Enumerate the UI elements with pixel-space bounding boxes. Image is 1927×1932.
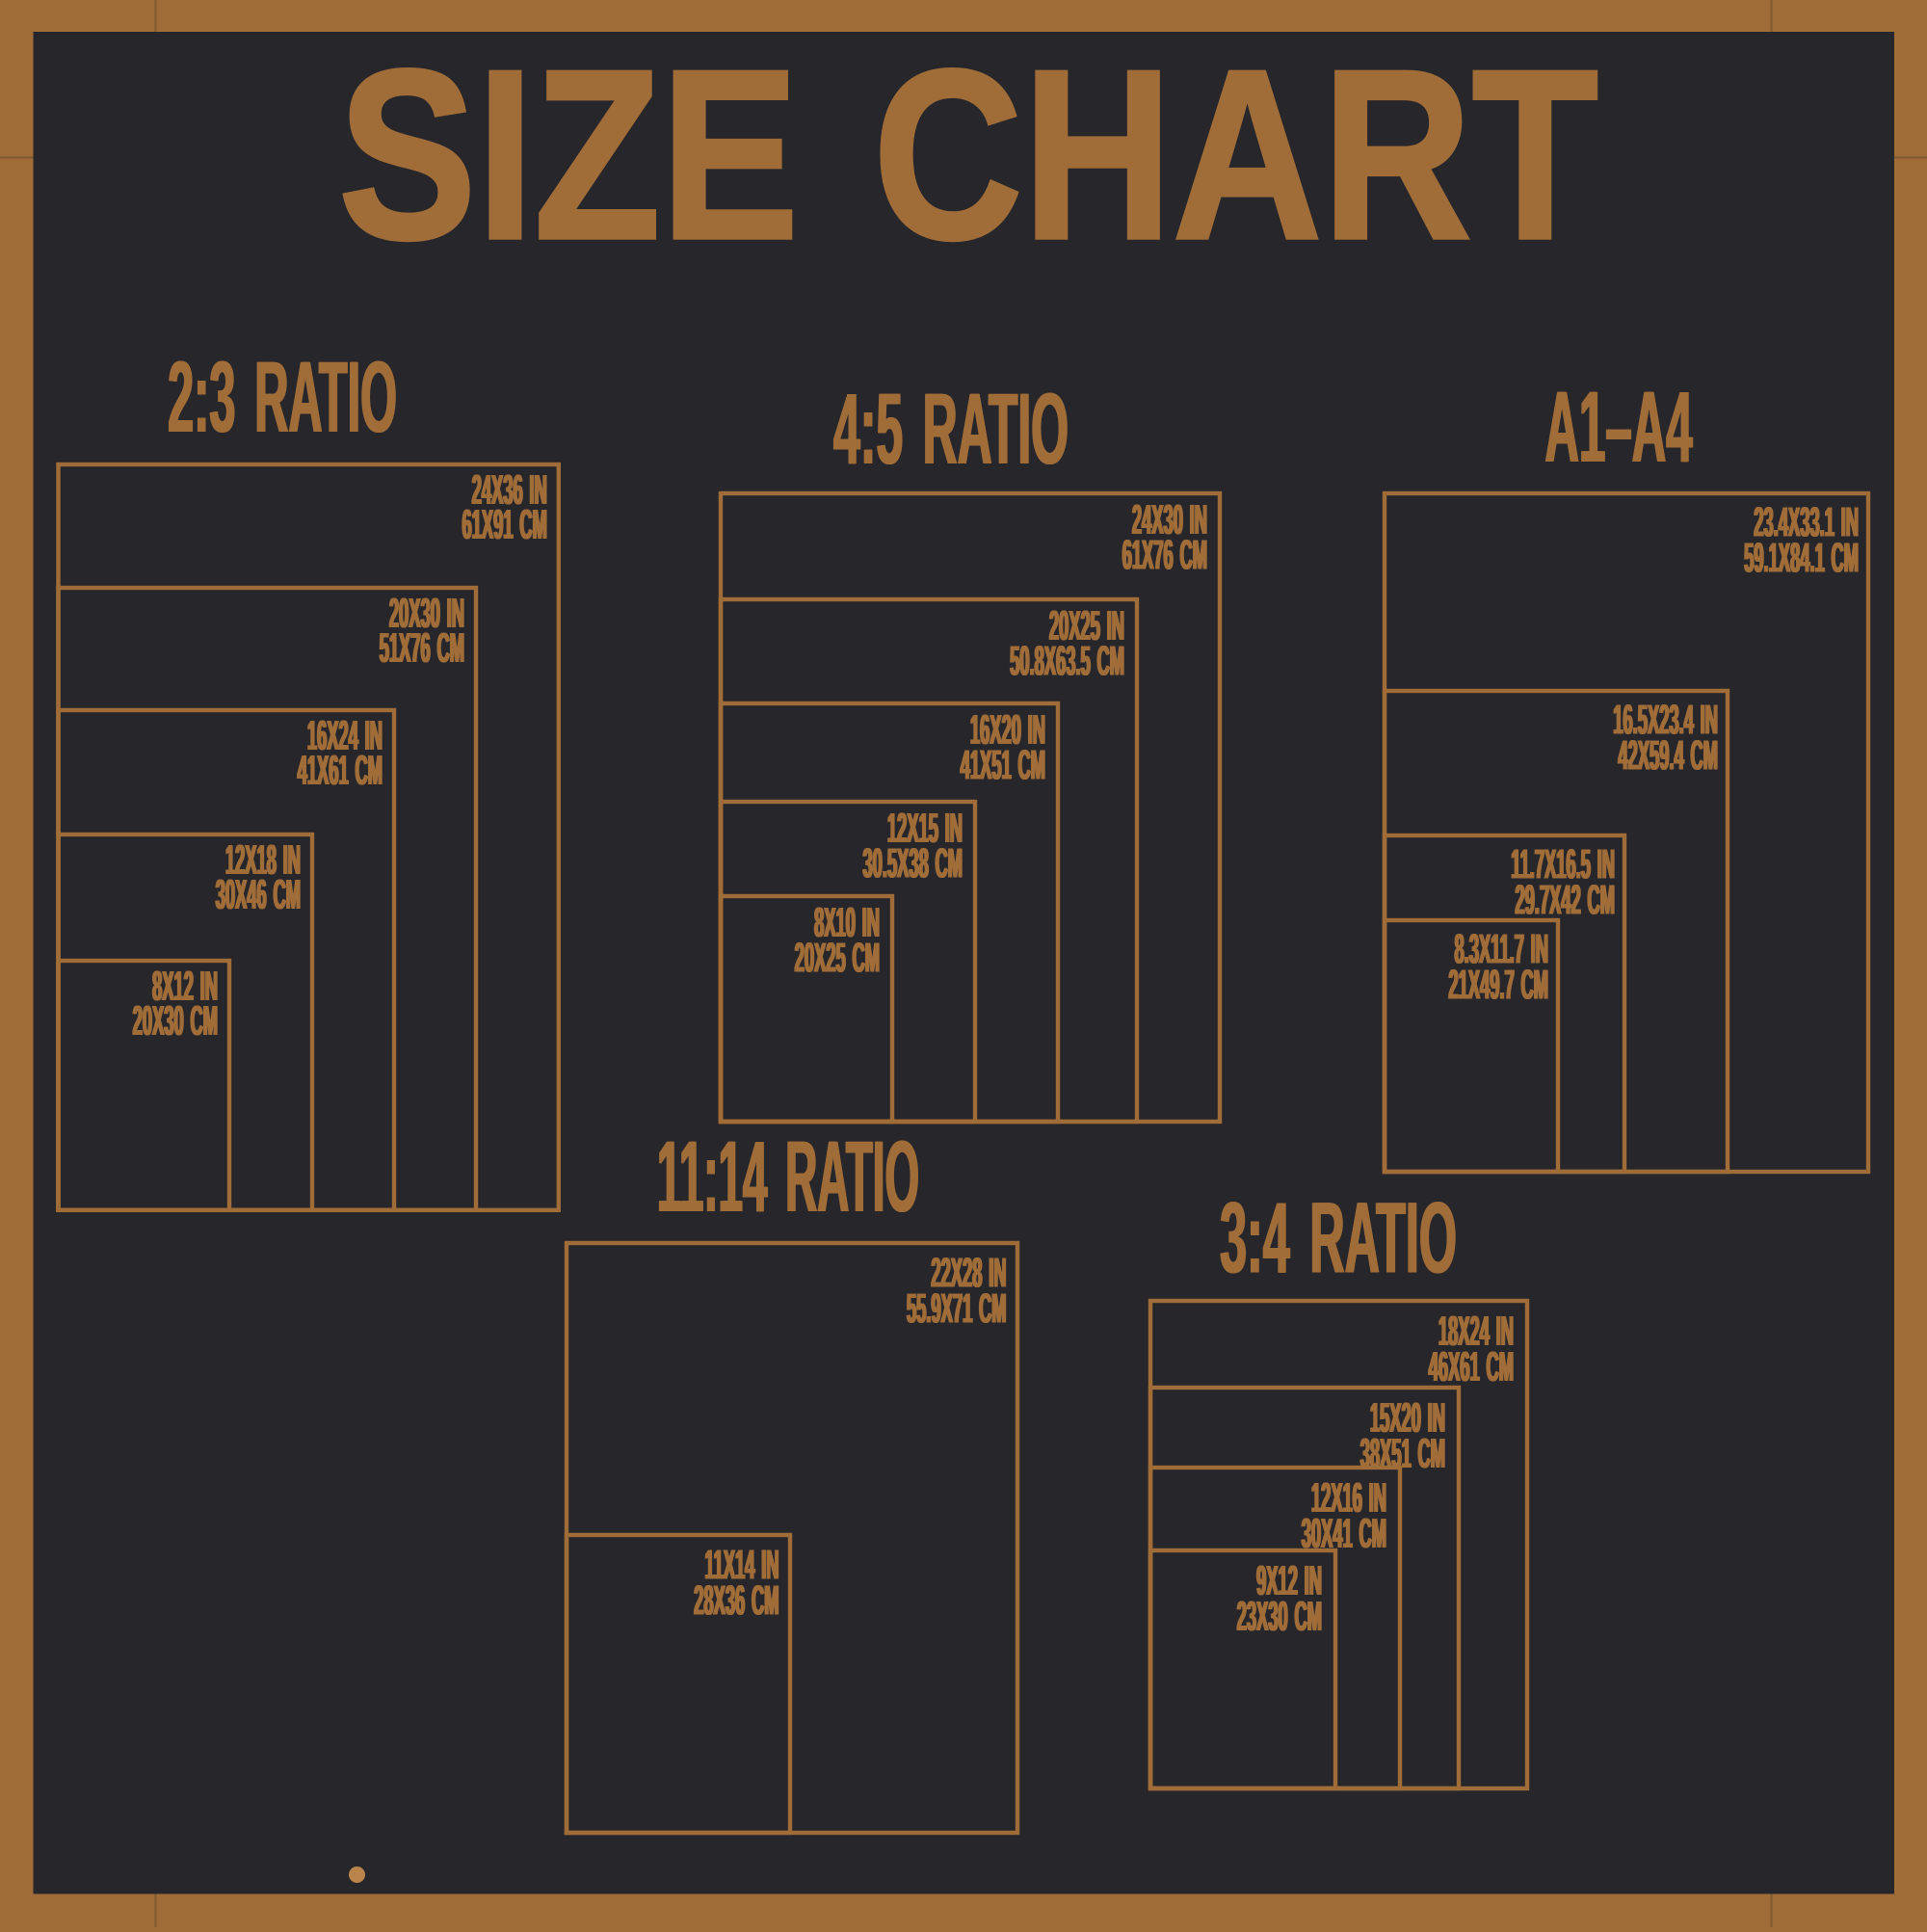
svg-text:61X91 CM: 61X91 CM	[462, 501, 547, 549]
svg-text:61X76 CM: 61X76 CM	[1123, 531, 1208, 579]
svg-text:11:14 RATIO: 11:14 RATIO	[658, 1122, 920, 1233]
svg-text:41X51 CM: 41X51 CM	[962, 741, 1046, 789]
svg-text:59.1X84.1 CM: 59.1X84.1 CM	[1745, 534, 1860, 582]
svg-text:20X25 CM: 20X25 CM	[796, 934, 881, 982]
svg-text:20X30 CM: 20X30 CM	[134, 997, 219, 1045]
svg-text:38X51 CM: 38X51 CM	[1361, 1430, 1446, 1478]
svg-text:28X36 CM: 28X36 CM	[695, 1576, 779, 1625]
svg-text:50.8X63.5 CM: 50.8X63.5 CM	[1011, 637, 1125, 685]
svg-text:A1–A4: A1–A4	[1545, 372, 1693, 484]
svg-text:41X61 CM: 41X61 CM	[299, 747, 383, 795]
svg-text:55.9X71 CM: 55.9X71 CM	[908, 1284, 1008, 1333]
svg-text:21X49.7 CM: 21X49.7 CM	[1449, 961, 1549, 1009]
svg-text:46X61 CM: 46X61 CM	[1430, 1343, 1515, 1391]
svg-text:29.7X42 CM: 29.7X42 CM	[1516, 876, 1616, 924]
svg-text:4:5 RATIO: 4:5 RATIO	[834, 374, 1069, 486]
svg-text:23X30 CM: 23X30 CM	[1238, 1593, 1323, 1641]
svg-text:30X46 CM: 30X46 CM	[217, 871, 302, 919]
svg-text:2:3 RATIO: 2:3 RATIO	[169, 342, 398, 454]
svg-text:42X59.4 CM: 42X59.4 CM	[1619, 731, 1719, 780]
svg-text:SIZE CHART: SIZE CHART	[338, 20, 1598, 290]
svg-text:51X76 CM: 51X76 CM	[381, 624, 465, 673]
svg-text:3:4 RATIO: 3:4 RATIO	[1221, 1182, 1458, 1294]
svg-text:30.5X38 CM: 30.5X38 CM	[863, 839, 963, 887]
